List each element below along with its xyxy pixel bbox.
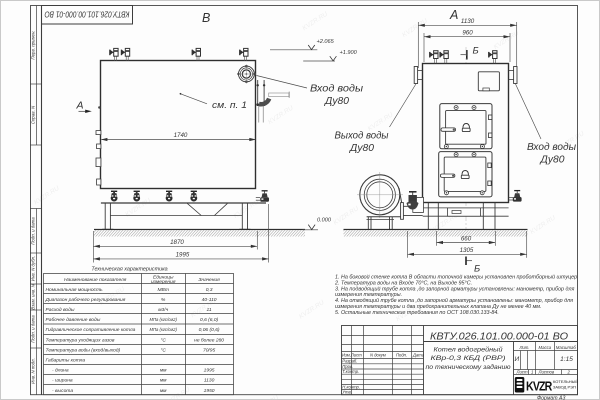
svg-text:40-110: 40-110: [202, 297, 217, 303]
svg-text:Рабочее давление воды: Рабочее давление воды: [46, 317, 101, 323]
svg-text:1870: 1870: [170, 239, 184, 246]
svg-text:Расход воды: Расход воды: [46, 307, 75, 313]
svg-text:измерения температуры и два пр: измерения температуры и два предохраните…: [335, 304, 541, 310]
svg-text:960: 960: [462, 29, 473, 36]
svg-text:5. Остальные технические треб: 5. Остальные технические требования по О…: [335, 310, 499, 316]
svg-text:0.000: 0.000: [317, 218, 332, 224]
svg-text:Справ. N: Справ. N: [30, 105, 35, 124]
svg-text:KVZR: KVZR: [526, 380, 552, 394]
svg-text:1:15: 1:15: [560, 356, 573, 363]
svg-text:по техническому заданию: по техническому заданию: [426, 364, 511, 371]
svg-text:Б: Б: [474, 264, 480, 275]
svg-text:Лит.: Лит.: [518, 345, 529, 350]
svg-text:- ширина: - ширина: [52, 379, 73, 384]
svg-text:МПа (кгс/см2): МПа (кгс/см2): [150, 317, 178, 322]
svg-text:Выход воды: Выход воды: [335, 131, 390, 142]
svg-text:- высота: - высота: [52, 389, 73, 394]
svg-text:+2.065: +2.065: [317, 39, 335, 45]
svg-text:МПа (кгс/см2): МПа (кгс/см2): [150, 327, 178, 332]
svg-text:Ду80: Ду80: [349, 143, 374, 154]
svg-text:Листов: Листов: [538, 369, 555, 374]
svg-text:0,3: 0,3: [206, 287, 213, 293]
svg-text:Масса: Масса: [538, 345, 551, 350]
svg-text:1130: 1130: [461, 18, 475, 25]
svg-text:Ду80: Ду80: [324, 96, 349, 107]
svg-text:В: В: [202, 11, 210, 25]
svg-text:°С: °С: [160, 337, 166, 343]
svg-text:N докум: N докум: [370, 353, 386, 358]
svg-text:Гидравлическое сопративление к: Гидравлическое сопративление котла: [46, 327, 136, 333]
svg-text:м3/ч: м3/ч: [158, 307, 168, 313]
svg-text:Б: Б: [473, 46, 479, 57]
svg-text:Инв. N дубл.: Инв. N дубл.: [30, 256, 35, 281]
svg-text:А: А: [449, 8, 458, 22]
svg-text:мм: мм: [160, 389, 167, 394]
svg-text:мм: мм: [160, 369, 167, 374]
svg-text:Перв. примен.: Перв. примен.: [30, 30, 35, 59]
svg-text:Котел водогрейный: Котел водогрейный: [434, 346, 504, 353]
svg-text:+1.900: +1.900: [340, 50, 358, 56]
svg-text:Температура воды (вход/выход): Температура воды (вход/выход): [46, 347, 121, 353]
svg-text:Изм.Лист: Изм.Лист: [342, 353, 362, 358]
svg-text:1. На боковой стенке котла В: 1. На боковой стенке котла В области топ…: [335, 273, 577, 280]
svg-text:КВр-0,3 КБД (РВР): КВр-0,3 КБД (РВР): [431, 355, 506, 362]
svg-text:КВТУ.026.101.00.000-01 ВО: КВТУ.026.101.00.000-01 ВО: [430, 330, 568, 342]
svg-text:Наименование показателя: Наименование показателя: [64, 277, 127, 283]
svg-text:1995: 1995: [204, 368, 215, 374]
svg-text:Подп. и дата: Подп. и дата: [30, 315, 35, 343]
svg-text:А: А: [76, 100, 84, 112]
svg-text:Габариты котла: Габариты котла: [46, 358, 86, 364]
svg-text:КВТУ.026.101.00.000-01 ВО: КВТУ.026.101.00.000-01 ВО: [45, 9, 130, 18]
svg-text:Диапазон рабочего регулировани: Диапазон рабочего регулирования: [45, 297, 126, 303]
svg-text:1950: 1950: [204, 388, 215, 394]
svg-text:1130: 1130: [204, 378, 215, 384]
svg-text:мм: мм: [160, 379, 167, 384]
svg-text:см. п. 1: см. п. 1: [212, 100, 247, 110]
svg-text:Инв. N подл.: Инв. N подл.: [30, 358, 35, 384]
svg-text:не более 280: не более 280: [194, 337, 224, 343]
svg-text:ЗАВОД РЭП: ЗАВОД РЭП: [553, 385, 576, 390]
svg-text:- длина: - длина: [52, 368, 69, 374]
svg-text:Номинальная мощность: Номинальная мощность: [46, 287, 104, 293]
svg-text:Формат А3: Формат А3: [537, 395, 565, 400]
svg-text:Утв.: Утв.: [342, 390, 352, 395]
svg-text:1305: 1305: [460, 247, 474, 254]
svg-text:11: 11: [207, 307, 212, 313]
svg-text:0,06 (0,6): 0,06 (0,6): [199, 327, 220, 333]
svg-text:Техническая характеристика: Техническая характеристика: [91, 267, 167, 273]
svg-text:1995: 1995: [176, 252, 190, 259]
svg-text:Температура уходящих газов: Температура уходящих газов: [46, 337, 115, 343]
svg-text:0,6 (6,0): 0,6 (6,0): [200, 317, 219, 323]
svg-text:Взам. инв. N: Взам. инв. N: [30, 283, 35, 309]
svg-text:4. На отводящий трубе котла ,: 4. На отводящий трубе котла ,до запорной…: [335, 297, 573, 304]
svg-text:Ду80: Ду80: [539, 155, 564, 166]
svg-text:КОТЕЛЬНЫЙ: КОТЕЛЬНЫЙ: [553, 379, 578, 384]
svg-text:Подп. и дата: Подп. и дата: [30, 217, 35, 245]
svg-text:измерения: измерения: [151, 280, 176, 285]
svg-text:Дата: Дата: [412, 353, 425, 358]
svg-text:Вход воды: Вход воды: [527, 142, 577, 153]
svg-text:Т.контр.: Т.контр.: [342, 369, 359, 374]
svg-text:И: И: [514, 356, 519, 363]
svg-text:Значения: Значения: [198, 277, 220, 283]
svg-text:Масштаб: Масштаб: [556, 345, 577, 350]
svg-text:Лист: Лист: [516, 369, 528, 374]
svg-text:70/95: 70/95: [203, 347, 216, 353]
svg-text:1740: 1740: [174, 132, 188, 139]
svg-text:%: %: [161, 297, 166, 303]
svg-text:Вход воды: Вход воды: [310, 84, 364, 95]
svg-text:°С: °С: [160, 347, 166, 353]
svg-text:660: 660: [461, 236, 472, 243]
svg-text:МВт: МВт: [157, 287, 168, 293]
svg-text:Подп.: Подп.: [396, 353, 407, 358]
